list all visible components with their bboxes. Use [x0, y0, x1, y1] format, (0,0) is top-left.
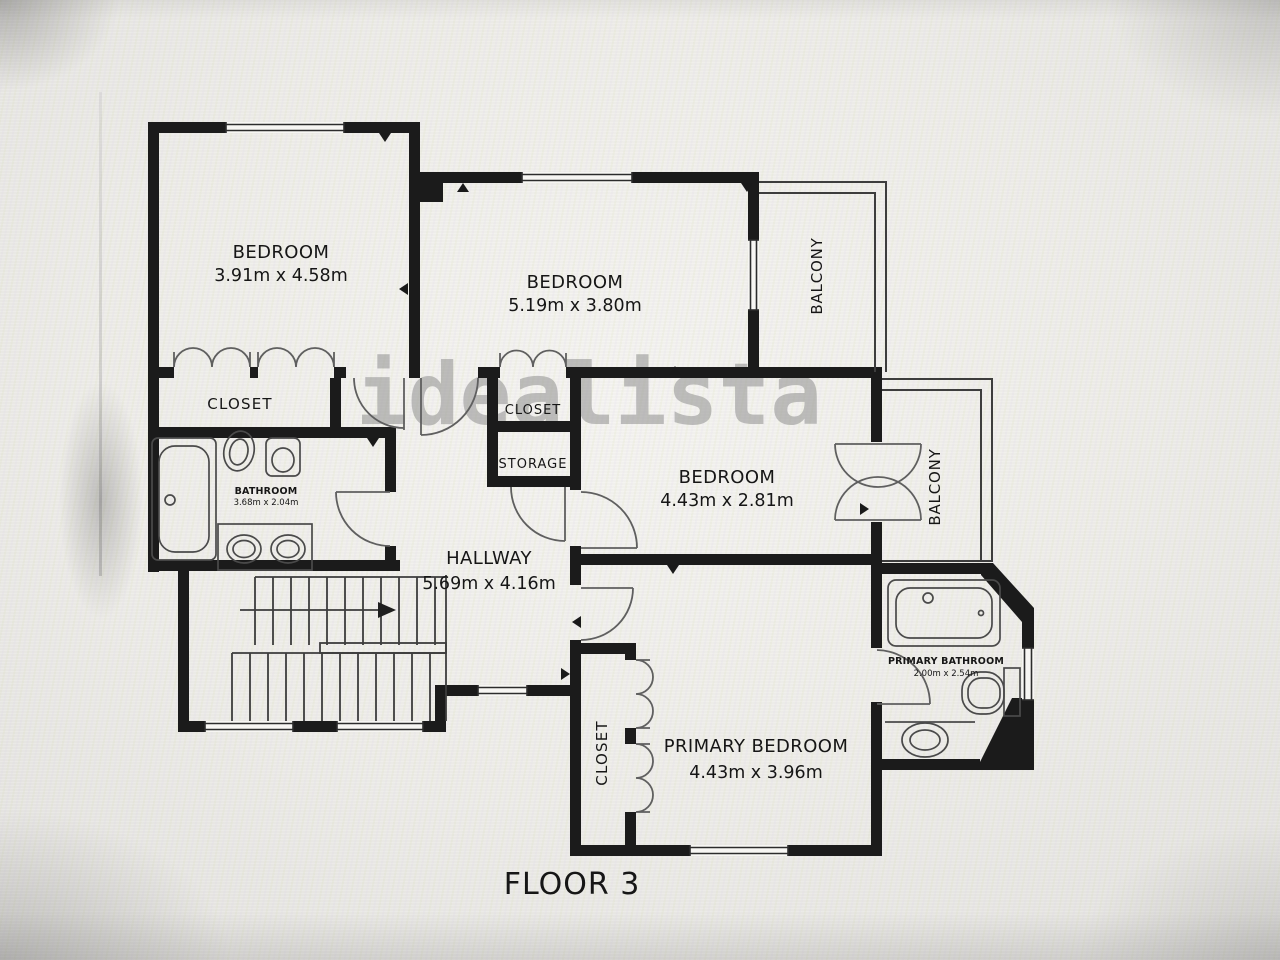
- door-storage: [511, 487, 565, 541]
- primary-bathroom-name: PRIMARY BATHROOM: [888, 656, 1004, 667]
- storage-label: STORAGE: [499, 457, 568, 472]
- door-primary-bedroom: [581, 588, 633, 640]
- primary-bedroom-dims: 4.43m x 3.96m: [689, 763, 823, 783]
- bedroom1-dims: 3.91m x 4.58m: [214, 266, 348, 286]
- staircase: [232, 575, 446, 721]
- marker-balcony-door: [860, 503, 869, 515]
- windows: [205, 122, 1034, 856]
- marker-primary-top: [667, 565, 679, 574]
- bedroom3-name: BEDROOM: [679, 467, 776, 488]
- toilet-primary-bottom: [885, 722, 975, 757]
- bedroom2-dims: 5.19m x 3.80m: [508, 296, 642, 316]
- bifold-closet-left-2: [258, 348, 334, 367]
- door-bedroom2: [421, 378, 478, 435]
- bifold-closet-mid: [500, 351, 566, 368]
- window-stairs-right: [337, 721, 423, 732]
- window-hallway-bottom: [478, 685, 527, 696]
- stairs-upper-flight: [255, 577, 446, 645]
- marker-bedroom1-top: [379, 133, 391, 142]
- window-bedroom2-top: [522, 172, 632, 183]
- opening-markers: [367, 133, 869, 680]
- door-bathroom: [336, 492, 390, 546]
- bifold-closet-primary-2: [636, 744, 653, 812]
- bifold-doors: [174, 348, 653, 812]
- marker-bedroom2-top: [457, 183, 469, 192]
- bedroom3-dims: 4.43m x 2.81m: [660, 491, 794, 511]
- door-bedroom1: [354, 378, 404, 430]
- window-balcony1-door: [748, 240, 759, 310]
- floorplan-drawing: BEDROOM 3.91m x 4.58m BEDROOM 5.19m x 3.…: [0, 0, 1280, 960]
- floor-label: FLOOR 3: [504, 867, 641, 902]
- marker-nook-door: [572, 616, 581, 628]
- marker-exterior-left: [561, 668, 570, 680]
- window-primary-bedroom-bottom: [690, 845, 788, 856]
- balcony-right-label: BALCONY: [926, 448, 944, 525]
- bidet-left: [266, 438, 300, 476]
- bedroom2-name: BEDROOM: [527, 272, 624, 293]
- door-bedroom3: [581, 492, 637, 548]
- stairs-lower-flight: [232, 653, 446, 721]
- balcony-top-label: BALCONY: [808, 237, 826, 314]
- closet-left-label: CLOSET: [207, 395, 272, 413]
- marker-bedroom1-door: [399, 283, 408, 295]
- window-primary-bathroom-right: [1022, 648, 1034, 700]
- bedroom1-name: BEDROOM: [233, 242, 330, 263]
- primary-bedroom-name: PRIMARY BEDROOM: [664, 736, 849, 757]
- bifold-closet-primary-1: [636, 660, 653, 728]
- bifold-closet-left-1: [174, 348, 250, 367]
- door-balcony-double: [835, 444, 921, 520]
- bathroom-dims: 3.68m x 2.04m: [234, 498, 299, 508]
- closet-mid-label: CLOSET: [505, 403, 562, 418]
- window-bedroom1-top: [226, 122, 344, 133]
- bathroom-name: BATHROOM: [235, 486, 298, 497]
- stairs-landing-divider: [320, 643, 446, 653]
- primary-bathroom-dims: 2.00m x 2.54m: [914, 669, 979, 679]
- floorplan-photo: idealista: [0, 0, 1280, 960]
- closet-primary-label: CLOSET: [593, 720, 611, 785]
- window-stairs-left: [205, 721, 293, 732]
- marker-bathroom-top: [367, 438, 379, 447]
- bathtub-primary: [888, 580, 1000, 646]
- hallway-name: HALLWAY: [446, 548, 532, 569]
- hallway-dims: 5.69m x 4.16m: [422, 574, 556, 594]
- bathtub-left: [152, 438, 216, 560]
- stairs-direction-arrowhead: [378, 602, 396, 618]
